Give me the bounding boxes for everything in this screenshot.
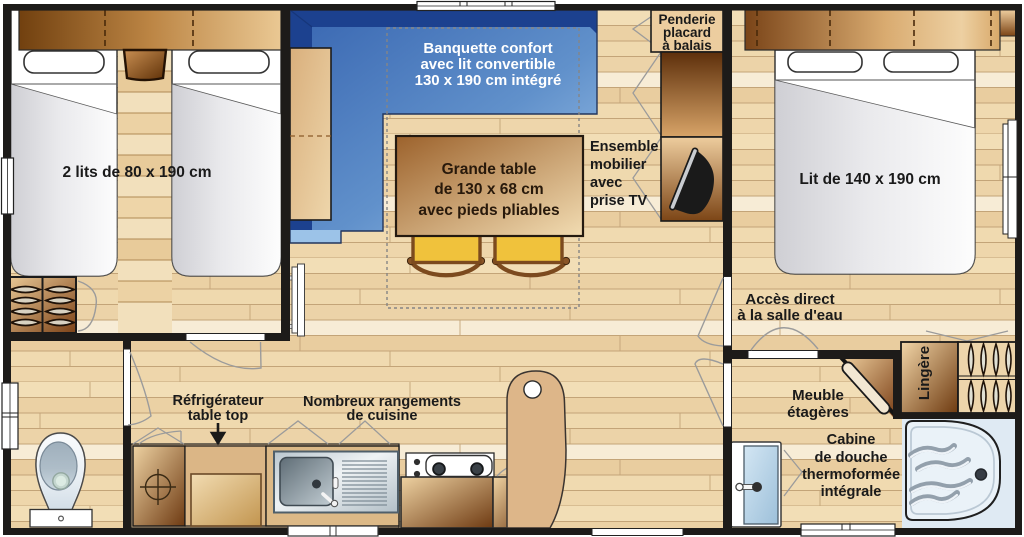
svg-text:à la salle d'eau: à la salle d'eau [737, 307, 842, 324]
svg-text:avec: avec [590, 175, 622, 191]
svg-text:avec lit convertible: avec lit convertible [420, 56, 555, 73]
svg-text:prise TV: prise TV [590, 193, 648, 209]
svg-text:mobilier: mobilier [590, 157, 647, 173]
svg-text:Cabine: Cabine [827, 432, 876, 448]
svg-text:Banquette confort: Banquette confort [423, 40, 552, 57]
svg-text:2 lits de 80 x 190 cm: 2 lits de 80 x 190 cm [62, 164, 211, 181]
svg-text:Grande table: Grande table [442, 161, 537, 178]
svg-text:avec pieds pliables: avec pieds pliables [418, 202, 559, 219]
svg-text:de douche: de douche [815, 450, 888, 466]
svg-text:intégrale: intégrale [821, 484, 882, 500]
svg-text:Lingère: Lingère [916, 346, 933, 400]
svg-text:thermoformée: thermoformée [802, 467, 900, 483]
svg-text:Meuble: Meuble [792, 387, 844, 404]
svg-text:Réfrigérateur: Réfrigérateur [172, 393, 263, 409]
svg-text:130 x 190 cm intégré: 130 x 190 cm intégré [415, 72, 562, 89]
svg-text:à balais: à balais [662, 38, 712, 53]
svg-text:Lit de 140 x 190 cm: Lit de 140 x 190 cm [799, 171, 940, 188]
svg-text:de cuisine: de cuisine [347, 408, 418, 424]
svg-text:étagères: étagères [787, 404, 849, 421]
svg-text:Ensemble: Ensemble [590, 139, 659, 155]
svg-text:Accès direct: Accès direct [745, 291, 834, 308]
svg-text:de 130 x 68 cm: de 130 x 68 cm [434, 181, 543, 198]
svg-text:table top: table top [188, 408, 249, 424]
